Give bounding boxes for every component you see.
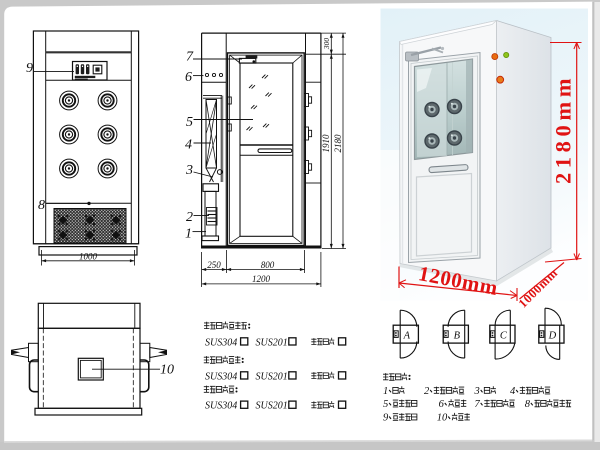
- svg-text:2: 2: [186, 210, 193, 225]
- svg-text:A: A: [403, 330, 411, 341]
- svg-text:4: 4: [510, 386, 516, 397]
- svg-text:300: 300: [322, 38, 331, 51]
- svg-text:C: C: [500, 330, 508, 341]
- svg-text:7: 7: [186, 50, 194, 65]
- svg-text:800: 800: [261, 260, 275, 270]
- svg-text:9: 9: [26, 61, 33, 76]
- svg-text:1: 1: [185, 227, 192, 242]
- svg-text:8: 8: [525, 399, 531, 410]
- svg-text:2180: 2180: [333, 134, 343, 153]
- svg-text:4: 4: [185, 138, 192, 153]
- svg-text:1: 1: [383, 386, 388, 397]
- svg-text:3: 3: [185, 163, 193, 178]
- svg-text:B: B: [454, 330, 461, 341]
- svg-text:5: 5: [186, 115, 193, 130]
- svg-text:SUS304: SUS304: [205, 401, 237, 412]
- svg-text:1910: 1910: [321, 134, 331, 153]
- svg-text:9: 9: [383, 413, 389, 424]
- svg-text:1200: 1200: [252, 274, 271, 284]
- svg-text:SUS304: SUS304: [205, 337, 237, 348]
- svg-text:10: 10: [160, 363, 174, 378]
- svg-text:SUS304: SUS304: [205, 371, 237, 382]
- svg-text:7: 7: [475, 399, 481, 410]
- svg-text:8: 8: [38, 198, 45, 213]
- svg-text:2180mm: 2180mm: [551, 74, 576, 184]
- svg-text:250: 250: [207, 260, 221, 270]
- svg-text:2: 2: [424, 386, 430, 397]
- svg-text:SUS201: SUS201: [256, 371, 288, 382]
- svg-text:6: 6: [439, 399, 445, 410]
- svg-text:D: D: [548, 330, 557, 341]
- svg-text:10: 10: [437, 413, 448, 424]
- svg-text:6: 6: [185, 70, 192, 85]
- svg-text:SUS201: SUS201: [256, 337, 288, 348]
- svg-text:3: 3: [474, 386, 480, 397]
- svg-text:5: 5: [383, 399, 388, 410]
- svg-text:1000: 1000: [79, 251, 98, 261]
- svg-text:SUS201: SUS201: [256, 401, 288, 412]
